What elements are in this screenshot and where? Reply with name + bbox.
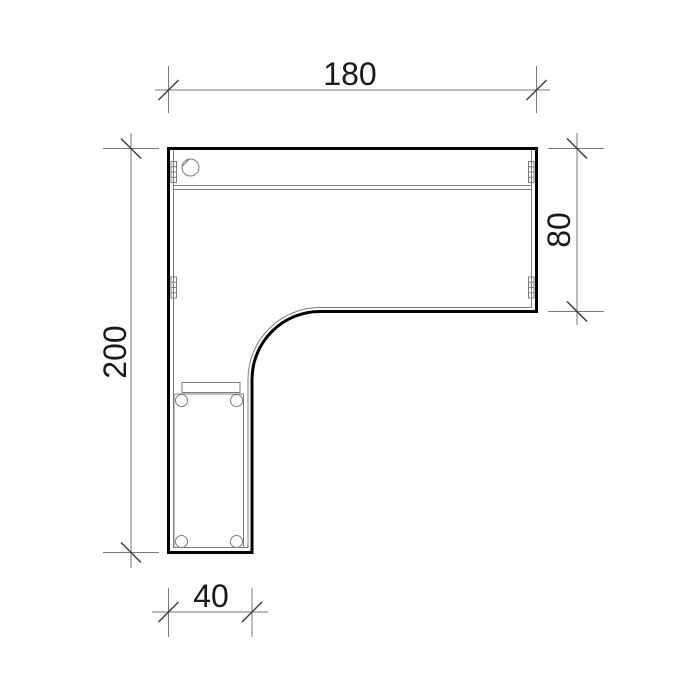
caster-circle-bottom-right	[231, 536, 243, 548]
desk-inner-edge	[174, 151, 532, 548]
dimension-label-bottom: 40	[193, 578, 229, 614]
dimension-label-right: 80	[541, 212, 577, 248]
dimension-left: 200	[97, 133, 159, 568]
dimension-right: 80	[541, 133, 604, 325]
cable-grommet	[182, 159, 199, 176]
dimension-bottom: 40	[152, 578, 268, 637]
pedestal-body	[174, 394, 244, 548]
caster-circle-top-left	[176, 395, 188, 407]
drawing-page: 180 80 200 40	[0, 0, 700, 700]
technical-drawing-canvas: 180 80 200 40	[0, 0, 700, 700]
dimension-label-top: 180	[323, 56, 376, 92]
caster-circle-top-right	[231, 395, 243, 407]
dimension-top: 180	[155, 56, 550, 113]
dimension-label-left: 200	[97, 325, 133, 378]
desk-outline	[169, 149, 537, 553]
pedestal-handle-plate	[182, 383, 240, 393]
caster-circle-bottom-left	[176, 536, 188, 548]
